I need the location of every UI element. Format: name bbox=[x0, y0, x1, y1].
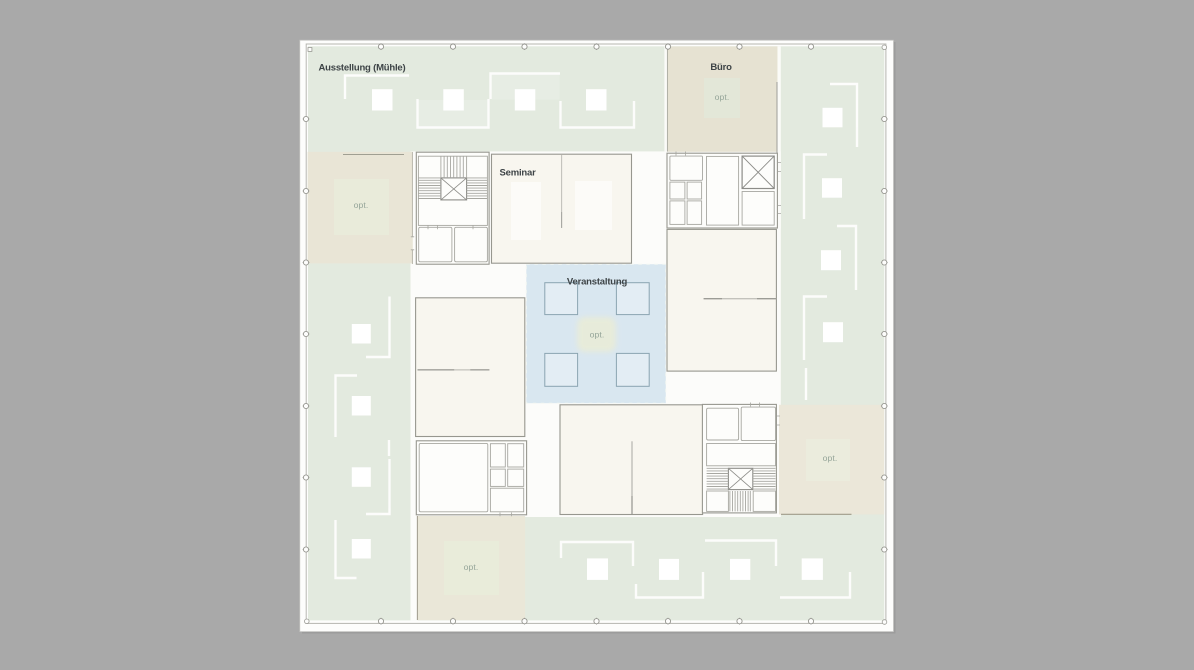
svg-text:Veranstaltung: Veranstaltung bbox=[567, 277, 628, 288]
svg-text:Büro: Büro bbox=[710, 62, 732, 73]
svg-text:opt.: opt. bbox=[590, 330, 605, 340]
svg-text:opt.: opt. bbox=[464, 562, 479, 572]
svg-text:Seminar: Seminar bbox=[500, 168, 537, 179]
svg-text:Ausstellung (Mühle): Ausstellung (Mühle) bbox=[319, 63, 406, 74]
svg-text:opt.: opt. bbox=[823, 453, 838, 463]
svg-text:opt.: opt. bbox=[354, 200, 369, 210]
svg-text:opt.: opt. bbox=[715, 92, 730, 102]
